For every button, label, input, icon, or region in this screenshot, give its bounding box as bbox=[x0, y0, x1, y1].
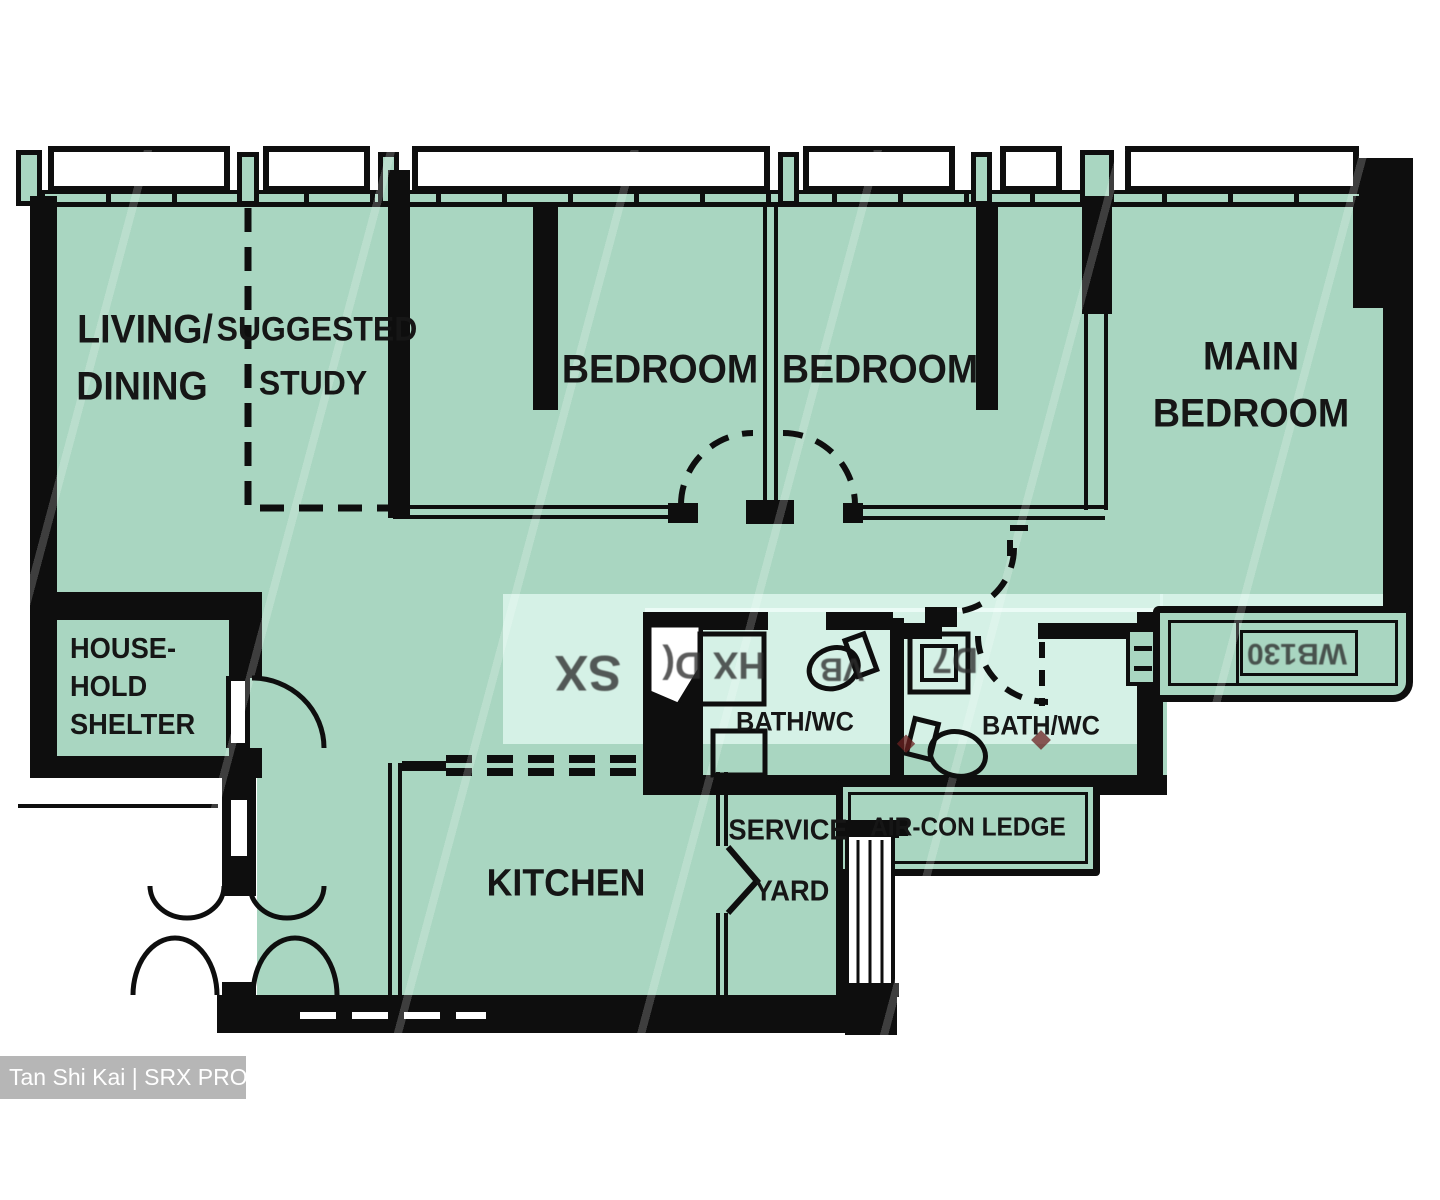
wall-bedroom2-bottom bbox=[853, 505, 1105, 520]
label-shelter-3: SHELTER bbox=[70, 706, 220, 744]
label-main-bedroom-1: MAIN bbox=[1203, 335, 1299, 380]
entrance-arc-small-left bbox=[150, 886, 224, 918]
label-living-1: LIVING/ bbox=[77, 308, 213, 353]
label-service-yard-2: YARD bbox=[755, 876, 830, 909]
ledge-divider bbox=[1236, 620, 1239, 686]
window-bedroom2b bbox=[1000, 146, 1062, 192]
mirrored-fragment-wb: WB130 bbox=[1247, 636, 1347, 670]
corridor-line-outside bbox=[18, 804, 218, 808]
label-shelter-1: HOUSE- bbox=[70, 630, 220, 668]
bottom-window-dash bbox=[456, 1012, 486, 1019]
label-aircon-ledge: AIR-CON LEDGE bbox=[870, 812, 1066, 843]
duct-shaft bbox=[643, 612, 703, 794]
mirrored-fragment: HX D( bbox=[662, 643, 765, 686]
floor-foyer bbox=[257, 763, 402, 997]
cabinet-dash bbox=[1134, 666, 1152, 671]
ladder-bottom-stub bbox=[841, 983, 899, 997]
foyer-door-leaf bbox=[226, 795, 252, 861]
window-pillar bbox=[778, 152, 799, 206]
wall-stub bbox=[746, 500, 794, 524]
entrance-opening bbox=[222, 896, 256, 982]
label-study-2: STUDY bbox=[259, 365, 367, 404]
floor-plan: SX HX D( VB D7 WB130 LIVING/ DINING SUGG… bbox=[0, 0, 1440, 1200]
label-service-yard-1: SERVICE bbox=[728, 815, 847, 848]
wall-bath1-top-left bbox=[700, 612, 768, 630]
label-bath2: BATH/WC bbox=[982, 711, 1100, 742]
wall-kitchen-top bbox=[402, 761, 446, 771]
mirrored-fragment: VB bbox=[820, 651, 864, 688]
window-bedroom1 bbox=[412, 146, 770, 192]
wall-kitchen-sy-lower bbox=[716, 913, 728, 997]
wall-right-outer bbox=[1383, 158, 1413, 646]
label-main-bedroom-2: BEDROOM bbox=[1153, 392, 1349, 437]
bottom-window-dash bbox=[352, 1012, 388, 1019]
label-bedroom1: BEDROOM bbox=[562, 348, 758, 393]
watermark-badge: Tan Shi Kai | SRX PROPERTY bbox=[0, 1056, 246, 1099]
window-pillar bbox=[237, 152, 259, 206]
label-kitchen: KITCHEN bbox=[487, 863, 646, 906]
wall-bedroom1-bottom bbox=[393, 505, 681, 519]
ladder-below-block bbox=[845, 997, 897, 1035]
wall-bath1-top-right bbox=[826, 612, 893, 630]
wall-bedroom-divider bbox=[763, 206, 778, 510]
label-study-1: SUGGESTED bbox=[217, 311, 418, 350]
kitchen-dashed-line-1 bbox=[446, 755, 646, 763]
window-living bbox=[48, 146, 230, 192]
label-bath1: BATH/WC bbox=[736, 707, 854, 738]
window-pillar bbox=[971, 152, 992, 206]
label-shelter: HOUSE- HOLD SHELTER bbox=[70, 630, 220, 744]
mirrored-fragment: D7 bbox=[932, 639, 978, 681]
wall-main-divider-low bbox=[1084, 310, 1108, 510]
ladder bbox=[845, 833, 895, 993]
window-bedroom2 bbox=[803, 146, 955, 192]
window-main-bedroom bbox=[1125, 146, 1359, 192]
wall-bath2-top-left bbox=[902, 623, 942, 639]
kitchen-dashed-line-2 bbox=[446, 768, 646, 776]
label-shelter-2: HOLD bbox=[70, 668, 220, 706]
wall-bedroom1-jamb bbox=[533, 207, 558, 410]
label-bedroom2: BEDROOM bbox=[782, 348, 978, 393]
bottom-window-dash bbox=[300, 1012, 336, 1019]
wall-kitchen-left bbox=[388, 763, 402, 997]
wall-main-divider-top bbox=[1082, 196, 1112, 314]
entrance-arc-big-left bbox=[133, 938, 217, 995]
mirrored-fragment: SX bbox=[555, 644, 622, 702]
wall-main-jamb bbox=[1353, 196, 1385, 308]
wall-bath-divider bbox=[890, 618, 904, 778]
cabinet-dash bbox=[1134, 646, 1152, 651]
wall-stub bbox=[668, 503, 698, 523]
bottom-window-dash bbox=[404, 1012, 440, 1019]
wall-stub bbox=[843, 503, 863, 523]
shelter-door-leaf bbox=[226, 676, 250, 748]
window-study bbox=[263, 146, 370, 192]
label-living-2: DINING bbox=[76, 365, 208, 410]
wall-bedroom2-jamb bbox=[976, 207, 998, 410]
